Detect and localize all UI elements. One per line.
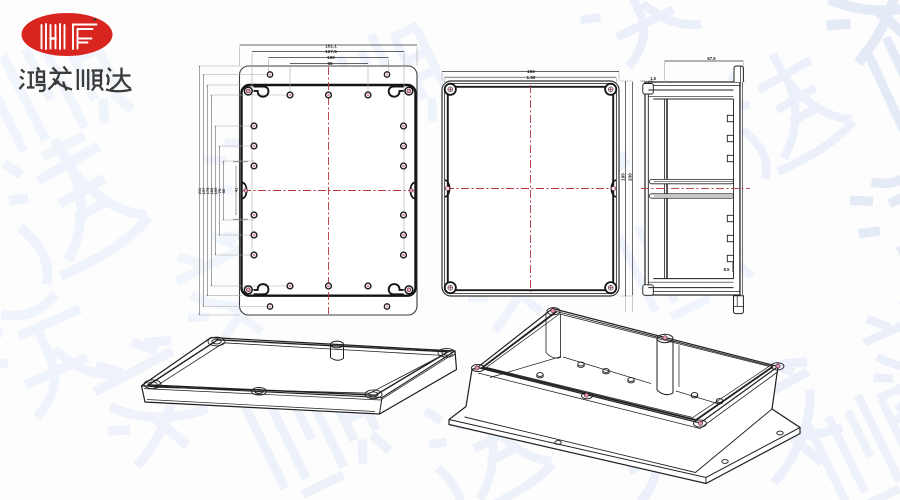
svg-text:150: 150 xyxy=(527,69,535,74)
svg-text:127.5: 127.5 xyxy=(325,49,337,54)
svg-text:1.5: 1.5 xyxy=(650,76,656,81)
svg-text:151.1: 151.1 xyxy=(325,44,337,49)
svg-text:65: 65 xyxy=(327,61,333,66)
svg-text:1.50: 1.50 xyxy=(527,75,536,80)
svg-text:67.5: 67.5 xyxy=(707,56,716,61)
svg-text:230: 230 xyxy=(628,173,633,181)
svg-text:195: 195 xyxy=(621,173,626,181)
svg-text:50: 50 xyxy=(221,188,226,193)
svg-text:41: 41 xyxy=(233,187,238,192)
svg-text:8.5: 8.5 xyxy=(724,267,730,272)
svg-text:100: 100 xyxy=(327,55,335,60)
